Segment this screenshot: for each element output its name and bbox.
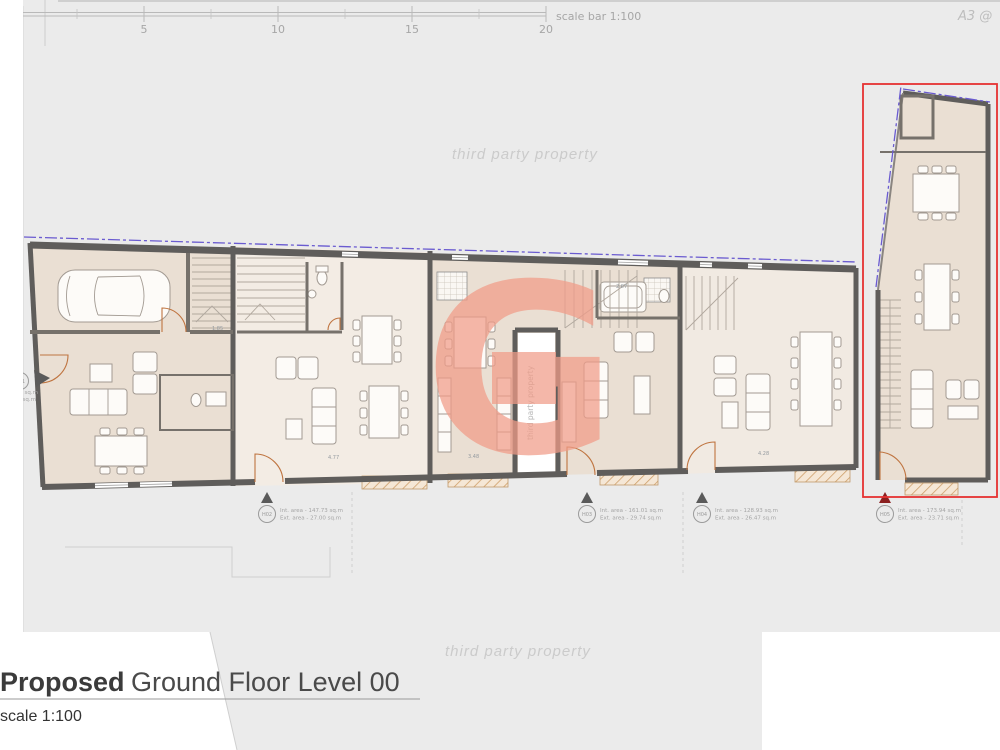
svg-text:Ext. area - 27.00 sq.m: Ext. area - 27.00 sq.m bbox=[280, 516, 341, 522]
svg-text:H02: H02 bbox=[262, 512, 272, 518]
dim-h02: 4.77 bbox=[328, 455, 339, 461]
svg-text:Int. area - 147.73 sq.m: Int. area - 147.73 sq.m bbox=[280, 508, 343, 514]
svg-text:H04: H04 bbox=[697, 512, 707, 518]
dining-table-h05a bbox=[913, 166, 959, 220]
title-scale-note: scale 1:100 bbox=[0, 708, 82, 725]
white-corner-right bbox=[762, 632, 1000, 750]
logo-watermark: G bbox=[424, 235, 617, 508]
dining-table-h02b bbox=[360, 386, 408, 438]
svg-text:Int. area - 128.93 sq.m: Int. area - 128.93 sq.m bbox=[715, 508, 778, 514]
svg-text:Ext. area - 26.47 sq.m: Ext. area - 26.47 sq.m bbox=[715, 516, 776, 522]
watermark-bottom: third party property bbox=[445, 643, 591, 660]
svg-text:Int. area - 173.94 sq.m: Int. area - 173.94 sq.m bbox=[898, 508, 961, 514]
svg-text:Int. area - 161.01 sq.m: Int. area - 161.01 sq.m bbox=[600, 508, 663, 514]
scale-bar-label: scale bar 1:100 bbox=[556, 10, 641, 23]
paper-size-label: A3 @ bbox=[957, 9, 992, 24]
svg-text:Ext. area - 29.74 sq.m: Ext. area - 29.74 sq.m bbox=[600, 516, 661, 522]
white-margin-left bbox=[0, 0, 23, 750]
scale-tick-20: 20 bbox=[539, 23, 553, 36]
dim-garage: 1.85 bbox=[212, 326, 223, 332]
scale-tick-10: 10 bbox=[271, 23, 285, 36]
dining-table-h02a bbox=[353, 316, 401, 364]
dim-h03-bath: 2.87 bbox=[616, 284, 627, 290]
title-regular: Ground Floor Level 00 bbox=[131, 667, 400, 697]
dim-h04: 4.28 bbox=[758, 451, 769, 457]
logo-block bbox=[492, 352, 556, 404]
svg-text:H03: H03 bbox=[582, 512, 592, 518]
title-bold: Proposed bbox=[0, 667, 125, 697]
scale-tick-15: 15 bbox=[405, 23, 419, 36]
svg-text:Ext. area - 23.71 sq.m: Ext. area - 23.71 sq.m bbox=[898, 516, 959, 522]
dining-table-h05b bbox=[915, 264, 959, 330]
drawing-sheet: 0 5 10 15 20 scale bar 1:100 A3 @ third … bbox=[0, 0, 1000, 750]
car bbox=[58, 270, 170, 322]
dining-table-h01 bbox=[95, 428, 147, 474]
watermark-top: third party property bbox=[452, 146, 598, 163]
floor-plan-svg: 0 5 10 15 20 scale bar 1:100 A3 @ third … bbox=[0, 0, 1000, 750]
scale-tick-5: 5 bbox=[141, 23, 148, 36]
svg-text:H05: H05 bbox=[880, 512, 890, 518]
